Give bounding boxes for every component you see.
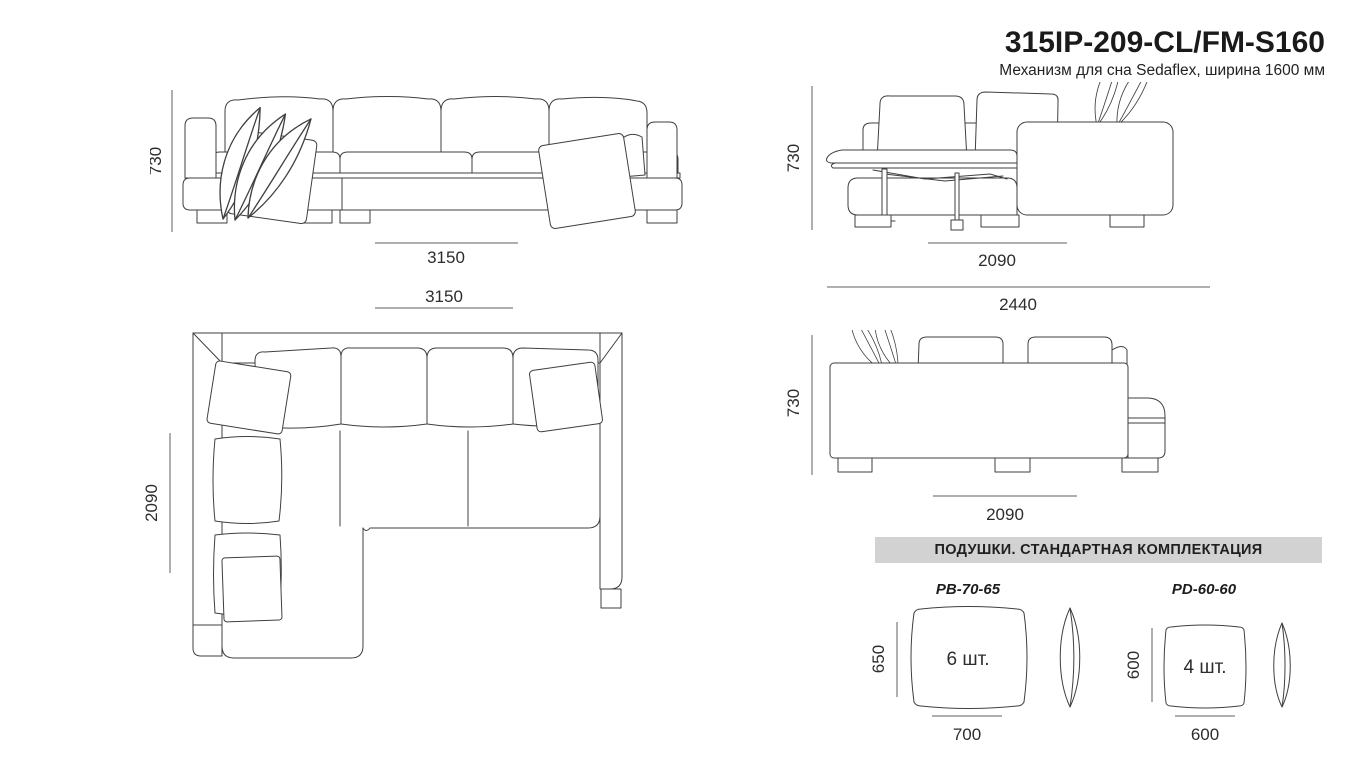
front-height-label: 730 [150,147,165,175]
pillow-pd-width-label: 600 [1191,725,1219,744]
back-panel [830,363,1128,458]
plan-view-drawing: 3150 2090 [145,285,705,705]
pillow-pd-side-shape [1274,623,1291,707]
front-width-dimension: 3150 [375,243,518,267]
pillow-pb-qty: 6 шт. [947,649,990,670]
pillow-pb-side-shape [1060,608,1080,707]
plan-left-corner-pillow [206,360,291,434]
unfolded-base-block [848,178,1017,215]
back-width-label: 2090 [986,505,1024,524]
unfolded-bed-platform [827,150,1018,168]
pillow-pd-height-label: 600 [1124,651,1143,679]
pillows-section-header: ПОДУШКИ. СТАНДАРТНАЯ КОМПЛЕКТАЦИЯ [875,537,1322,563]
title-block: 315IP-209-CL/FM-S160 Механизм для сна Se… [999,27,1325,80]
unfolded-feet [855,215,1144,227]
unfolded-chaise-block [1017,122,1173,215]
pillow-pb-width-dimension: 700 [932,716,1002,744]
pillow-pd-figure: 4 шт. 600 600 [1120,600,1305,750]
unfolded-view-drawing: 730 [785,82,1340,317]
back-height-label: 730 [785,389,803,417]
pillow-pd-qty: 4 шт. [1184,657,1227,678]
back-height-dimension: 730 [785,335,812,475]
back-feet [838,458,1158,472]
plan-seat-front-edge [363,516,600,531]
pillow-pd-name: PD-60-60 [1139,581,1269,598]
plan-seat-dividers [340,431,468,526]
unfolded-bed-width-label: 2090 [978,251,1016,270]
pillow-pb-height-dimension: 650 [869,622,897,697]
sofa-spec-sheet: 315IP-209-CL/FM-S160 Механизм для сна Se… [0,0,1366,768]
plan-depth-dimension: 2090 [145,433,170,573]
unfolded-height-label: 730 [785,144,803,172]
unfolded-total-width-label: 2440 [999,295,1037,314]
mechanism-subtitle: Механизм для сна Sedaflex, ширина 1600 м… [999,62,1325,80]
plan-depth-label: 2090 [145,484,161,522]
plan-width-dimension: 3150 [375,287,513,308]
front-width-label: 3150 [427,248,465,267]
unfolded-total-width-dimension: 2440 [827,287,1210,314]
back-width-dimension: 2090 [933,496,1077,524]
unfolded-height-dimension: 730 [785,86,812,230]
pillow-pb-name: PB-70-65 [862,581,1074,598]
back-arm-block [1128,398,1165,458]
front-height-dimension: 730 [150,90,172,232]
front-view-drawing: 730 [150,85,710,275]
pillow-pb-height-label: 650 [869,645,888,673]
pillow-pb-figure: 6 шт. 650 700 [860,600,1090,750]
pillow-pd-height-dimension: 600 [1124,628,1152,702]
pillow-pb-width-label: 700 [953,725,981,744]
front-right-square-pillow [538,133,636,229]
back-view-drawing: 730 2090 [785,330,1245,530]
plan-width-label: 3150 [425,287,463,306]
pillow-pd-width-dimension: 600 [1175,716,1235,744]
unfolded-bed-width-dimension: 2090 [928,243,1067,270]
plan-right-corner-pillow [529,362,603,433]
plan-chaise-square-pillow [222,556,282,622]
model-number: 315IP-209-CL/FM-S160 [999,27,1325,59]
